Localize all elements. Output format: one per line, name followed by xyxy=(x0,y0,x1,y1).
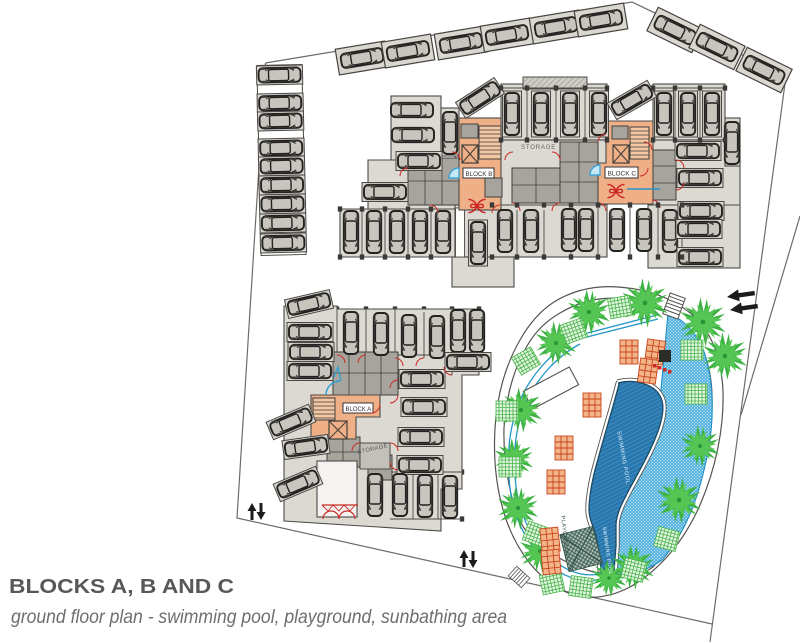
svg-text:ground floor plan - swimming p: ground floor plan - swimming pool, playg… xyxy=(11,607,507,628)
svg-text:BLOCK B: BLOCK B xyxy=(466,171,493,178)
svg-text:BLOCK A: BLOCK A xyxy=(346,407,372,413)
svg-text:STORAGE: STORAGE xyxy=(521,144,556,151)
svg-text:BLOCK C: BLOCK C xyxy=(608,171,637,178)
svg-text:BLOCKS A, B AND C: BLOCKS A, B AND C xyxy=(9,576,234,598)
